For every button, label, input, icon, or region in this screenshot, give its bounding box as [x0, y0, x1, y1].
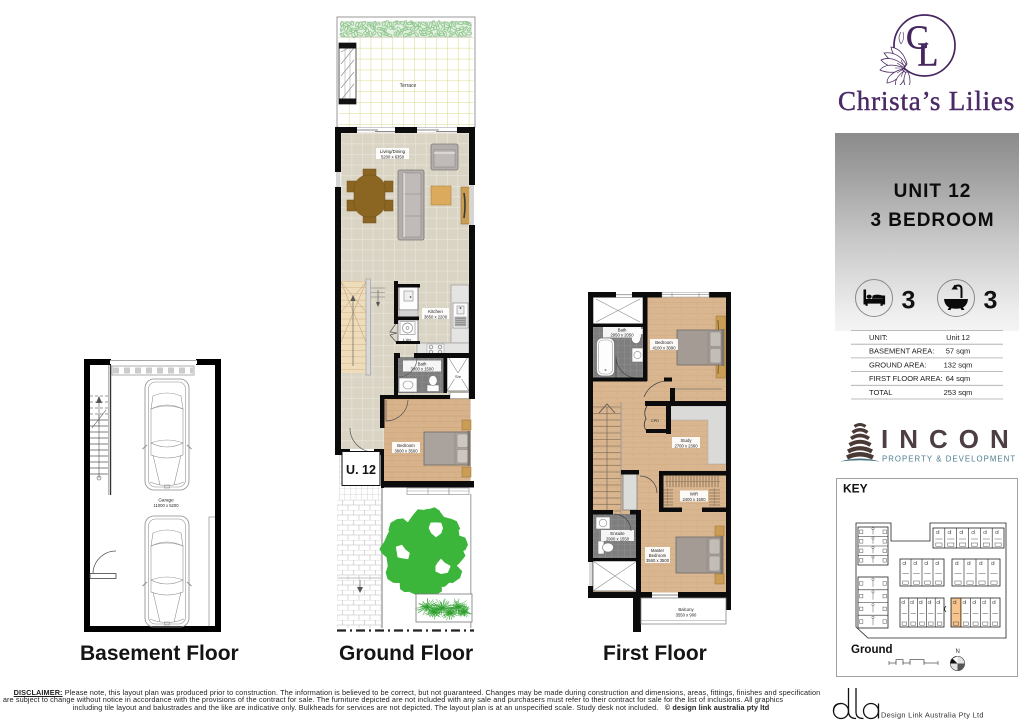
svg-text:Garage: Garage — [158, 498, 174, 503]
svg-text:TOTAL: TOTAL — [869, 388, 892, 397]
svg-text:3550 x 900: 3550 x 900 — [676, 612, 697, 617]
svg-text:2950 x 2050: 2950 x 2050 — [610, 333, 634, 338]
svg-text:11000 x 5200: 11000 x 5200 — [153, 503, 179, 508]
svg-text:64 sqm: 64 sqm — [946, 374, 971, 383]
svg-text:253 sqm: 253 sqm — [944, 388, 973, 397]
svg-text:3850 x 2200: 3850 x 2200 — [424, 314, 448, 319]
svg-text:BASEMENT AREA:: BASEMENT AREA: — [869, 347, 934, 356]
svg-text:FIRST FLOOR AREA:: FIRST FLOOR AREA: — [869, 374, 943, 383]
svg-text:Study: Study — [681, 438, 693, 443]
svg-text:57 sqm: 57 sqm — [946, 347, 971, 356]
svg-text:Design Link Australia Pty Ltd: Design Link Australia Pty Ltd — [881, 711, 984, 720]
svg-text:GROUND AREA:: GROUND AREA: — [869, 360, 927, 369]
svg-text:4100 x 3090: 4100 x 3090 — [652, 345, 676, 350]
svg-text:Bedroom: Bedroom — [397, 443, 415, 448]
svg-text:3560 x 3500: 3560 x 3500 — [646, 558, 670, 563]
svg-text:2400 x 1500: 2400 x 1500 — [682, 497, 706, 502]
svg-text:3: 3 — [984, 287, 998, 315]
svg-text:132 sqm: 132 sqm — [944, 360, 973, 369]
svg-text:Ground: Ground — [851, 644, 893, 656]
svg-text:PROPERTY & DEVELOPMENT: PROPERTY & DEVELOPMENT — [882, 455, 1016, 464]
svg-text:WIR: WIR — [690, 492, 698, 497]
svg-text:UNIT:: UNIT: — [869, 333, 888, 342]
svg-text:5200 x 6350: 5200 x 6350 — [381, 154, 405, 159]
svg-text:L: L — [918, 37, 939, 74]
svg-text:2700 x 2360: 2700 x 2360 — [674, 443, 698, 448]
svg-text:3600 x 3500: 3600 x 3500 — [394, 448, 418, 453]
svg-text:Balcony: Balcony — [678, 607, 694, 612]
svg-text:INCON: INCON — [881, 424, 1020, 454]
svg-text:Bedroom: Bedroom — [655, 340, 673, 345]
svg-text:Kitchen: Kitchen — [428, 309, 443, 314]
svg-text:N: N — [956, 649, 960, 655]
svg-text:Shr: Shr — [455, 375, 462, 379]
svg-text:U. 12: U. 12 — [346, 463, 376, 477]
svg-text:3: 3 — [902, 287, 916, 315]
svg-text:CPD: CPD — [651, 419, 659, 423]
svg-text:3000 x 1500: 3000 x 1500 — [410, 367, 434, 372]
svg-text:Living/Dining: Living/Dining — [380, 149, 406, 154]
svg-text:Terrace: Terrace — [400, 83, 417, 89]
svg-text:Unit 12: Unit 12 — [946, 333, 970, 342]
svg-text:Ensuite: Ensuite — [610, 531, 625, 536]
svg-text:2900 x 1550: 2900 x 1550 — [606, 536, 630, 541]
svg-text:KEY: KEY — [843, 482, 868, 496]
